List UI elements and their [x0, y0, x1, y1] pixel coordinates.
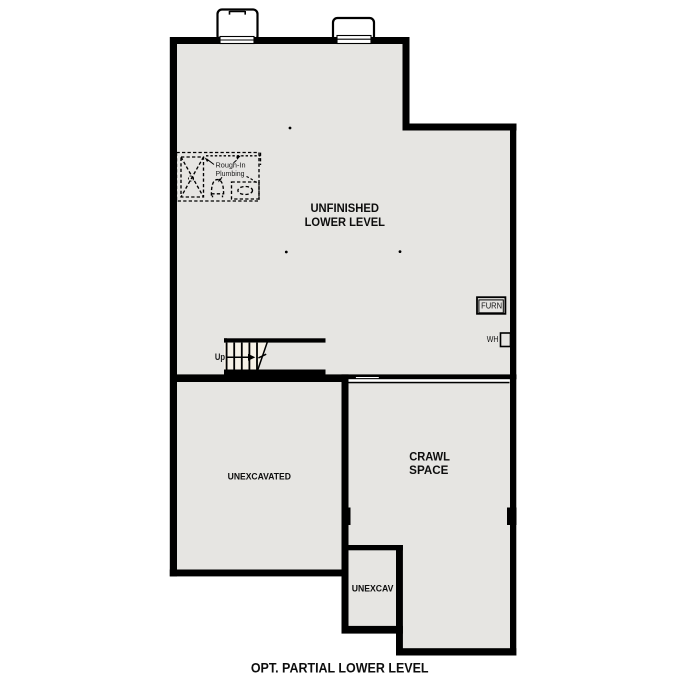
- svg-text:UNEXCAVATED: UNEXCAVATED: [228, 472, 292, 482]
- svg-text:Up: Up: [215, 352, 225, 363]
- svg-text:OPT. PARTIAL LOWER LEVEL: OPT. PARTIAL LOWER LEVEL: [251, 661, 429, 677]
- svg-text:CRAWL: CRAWL: [409, 451, 450, 463]
- svg-text:LOWER LEVEL: LOWER LEVEL: [305, 215, 385, 229]
- svg-text:UNEXCAV: UNEXCAV: [352, 584, 394, 594]
- svg-text:SPACE: SPACE: [409, 465, 449, 477]
- svg-text:WH: WH: [487, 334, 499, 344]
- svg-text:Plumbing: Plumbing: [216, 169, 245, 178]
- svg-text:UNFINISHED: UNFINISHED: [310, 201, 379, 215]
- svg-text:FURN: FURN: [481, 301, 502, 311]
